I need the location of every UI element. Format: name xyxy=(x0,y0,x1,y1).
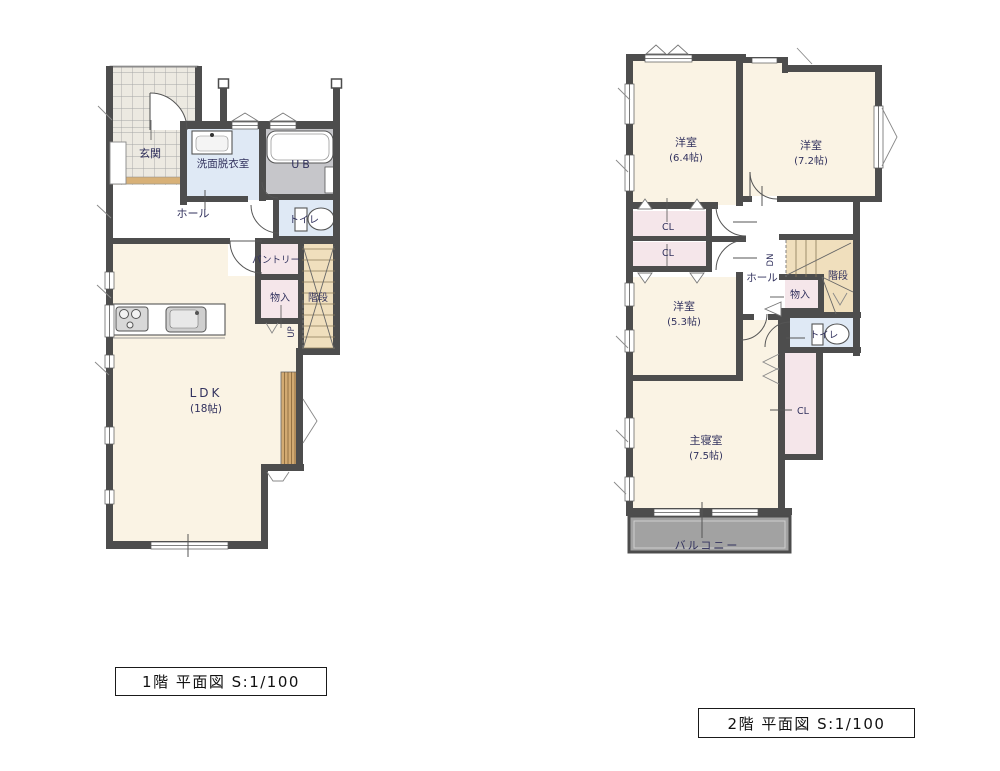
floor2-plan: 洋室 (6.4帖) 洋室 (7.2帖) CL CL ホール DN 階段 物入 ト… xyxy=(614,45,897,552)
label-stairs2: 階段 xyxy=(828,269,848,282)
shoe-cabinet xyxy=(110,142,126,184)
room-7-2-floor xyxy=(742,63,876,196)
label-storage2: 物入 xyxy=(790,288,810,301)
stove-burner xyxy=(132,310,141,319)
floor-plan-page: 玄関 洗面脱衣室 UB ホール トイレ パントリー 物入 階段 UP LDK (… xyxy=(0,0,1000,771)
label-pantry: パントリー xyxy=(252,255,300,266)
casement-window-icon xyxy=(882,108,897,166)
casement-window-icon xyxy=(668,45,688,54)
stove-burner xyxy=(127,322,133,328)
label-ldk: LDK xyxy=(190,386,223,400)
label-room3: 洋室 xyxy=(673,299,695,313)
label-up: UP xyxy=(287,326,297,337)
floor2-room-fills xyxy=(629,60,876,552)
label-room1-size: (6.4帖) xyxy=(669,151,703,164)
folding-door-mark xyxy=(765,302,781,316)
label-toilet2: トイレ xyxy=(810,330,839,341)
label-stairs1: 階段 xyxy=(308,291,328,304)
label-ldk-size: (18帖) xyxy=(190,402,222,415)
label-room1: 洋室 xyxy=(675,135,697,149)
label-storage1: 物入 xyxy=(270,291,290,304)
label-room2: 洋室 xyxy=(800,138,822,152)
label-room2-size: (7.2帖) xyxy=(794,154,828,167)
label-cl2: CL xyxy=(662,248,675,259)
floor1-caption: 1階 平面図 S:1/100 xyxy=(115,667,327,696)
label-room3-size: (5.3帖) xyxy=(667,315,701,328)
opening-mark xyxy=(303,399,317,443)
wood-deck xyxy=(281,372,297,466)
sink-faucet xyxy=(195,311,199,315)
casement-window-icon xyxy=(646,45,666,54)
stove-burner xyxy=(120,310,129,319)
floor1-plan: 玄関 洗面脱衣室 UB ホール トイレ パントリー 物入 階段 UP LDK (… xyxy=(95,66,342,557)
label-washroom: 洗面脱衣室 xyxy=(197,157,250,170)
label-master: 主寝室 xyxy=(690,433,723,447)
floor-plan-drawing: 玄関 洗面脱衣室 UB ホール トイレ パントリー 物入 階段 UP LDK (… xyxy=(0,0,1000,771)
label-balcony: バルコニー xyxy=(675,539,740,552)
label-ub: UB xyxy=(291,158,313,171)
closet3-floor xyxy=(785,353,816,455)
casement-window-icon xyxy=(270,113,296,121)
label-cl1: CL xyxy=(662,222,675,233)
room-6-4-floor xyxy=(632,60,737,205)
label-genkan: 玄関 xyxy=(139,146,161,160)
sink-basin xyxy=(170,310,198,328)
casement-window-icon xyxy=(232,113,258,121)
room53-door-arc xyxy=(716,240,746,270)
washbasin-faucet xyxy=(210,133,214,137)
label-hall2: ホール xyxy=(746,272,778,284)
room64-door-arc xyxy=(716,206,746,236)
label-hall1: ホール xyxy=(177,207,210,220)
washbasin-bowl xyxy=(196,136,228,151)
label-toilet1: トイレ xyxy=(289,215,319,226)
label-cl3: CL xyxy=(797,406,810,417)
opening-mark xyxy=(267,472,289,481)
label-master-size: (7.5帖) xyxy=(689,449,723,462)
floor2-caption: 2階 平面図 S:1/100 xyxy=(698,708,915,738)
label-dn: DN xyxy=(766,254,776,267)
